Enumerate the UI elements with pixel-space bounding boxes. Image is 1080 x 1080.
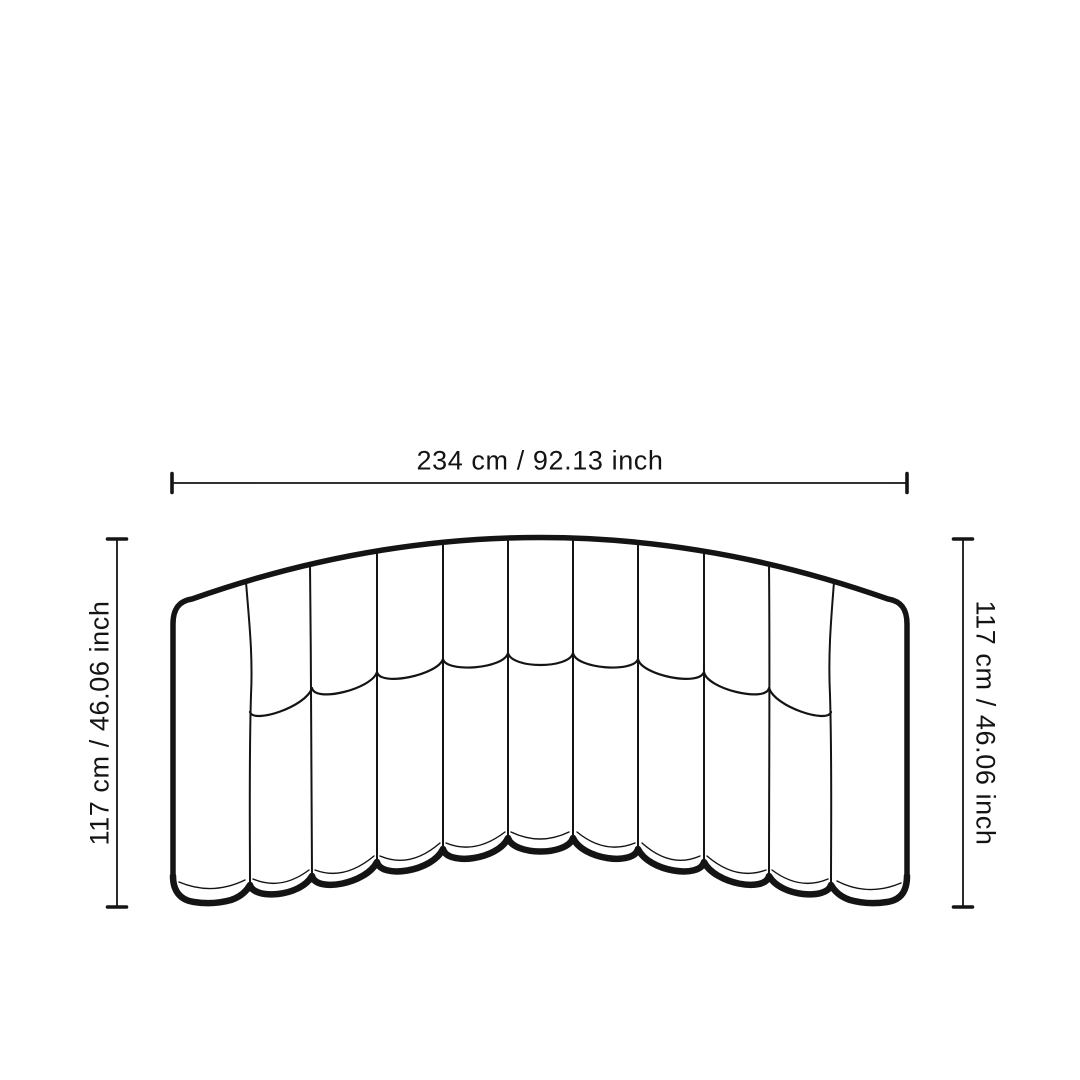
- seat-back-scallop-line: [250, 653, 831, 716]
- piping-line: [253, 870, 309, 883]
- height-dimension-label-left: 117 cm / 46.06 inch: [85, 600, 116, 845]
- dimension-diagram: 234 cm / 92.13 inch 117 cm / 46.06 inch …: [0, 0, 1080, 1080]
- piping-line: [179, 880, 245, 889]
- width-dimension-label: 234 cm / 92.13 inch: [416, 446, 663, 477]
- piping-line: [772, 870, 828, 883]
- sofa-outline-bottom-scallops: [173, 838, 907, 903]
- piping-line: [642, 843, 700, 860]
- height-dimension-label-right: 117 cm / 46.06 inch: [970, 600, 1001, 845]
- piping-line: [577, 832, 635, 847]
- left-arm-inner-line: [246, 582, 252, 885]
- piping-line: [837, 881, 901, 890]
- channel-seam-lines: [246, 538, 834, 885]
- piping-line: [380, 843, 440, 860]
- piping-line: [511, 832, 569, 839]
- sofa-outline-top-and-sides: [173, 538, 907, 880]
- bottom-piping-lines: [179, 832, 901, 890]
- sofa-outline: [173, 538, 907, 904]
- sofa-line-drawing: [0, 0, 1080, 1080]
- piping-line: [446, 832, 505, 847]
- channel-line: [310, 565, 312, 876]
- right-arm-inner-line: [829, 582, 834, 885]
